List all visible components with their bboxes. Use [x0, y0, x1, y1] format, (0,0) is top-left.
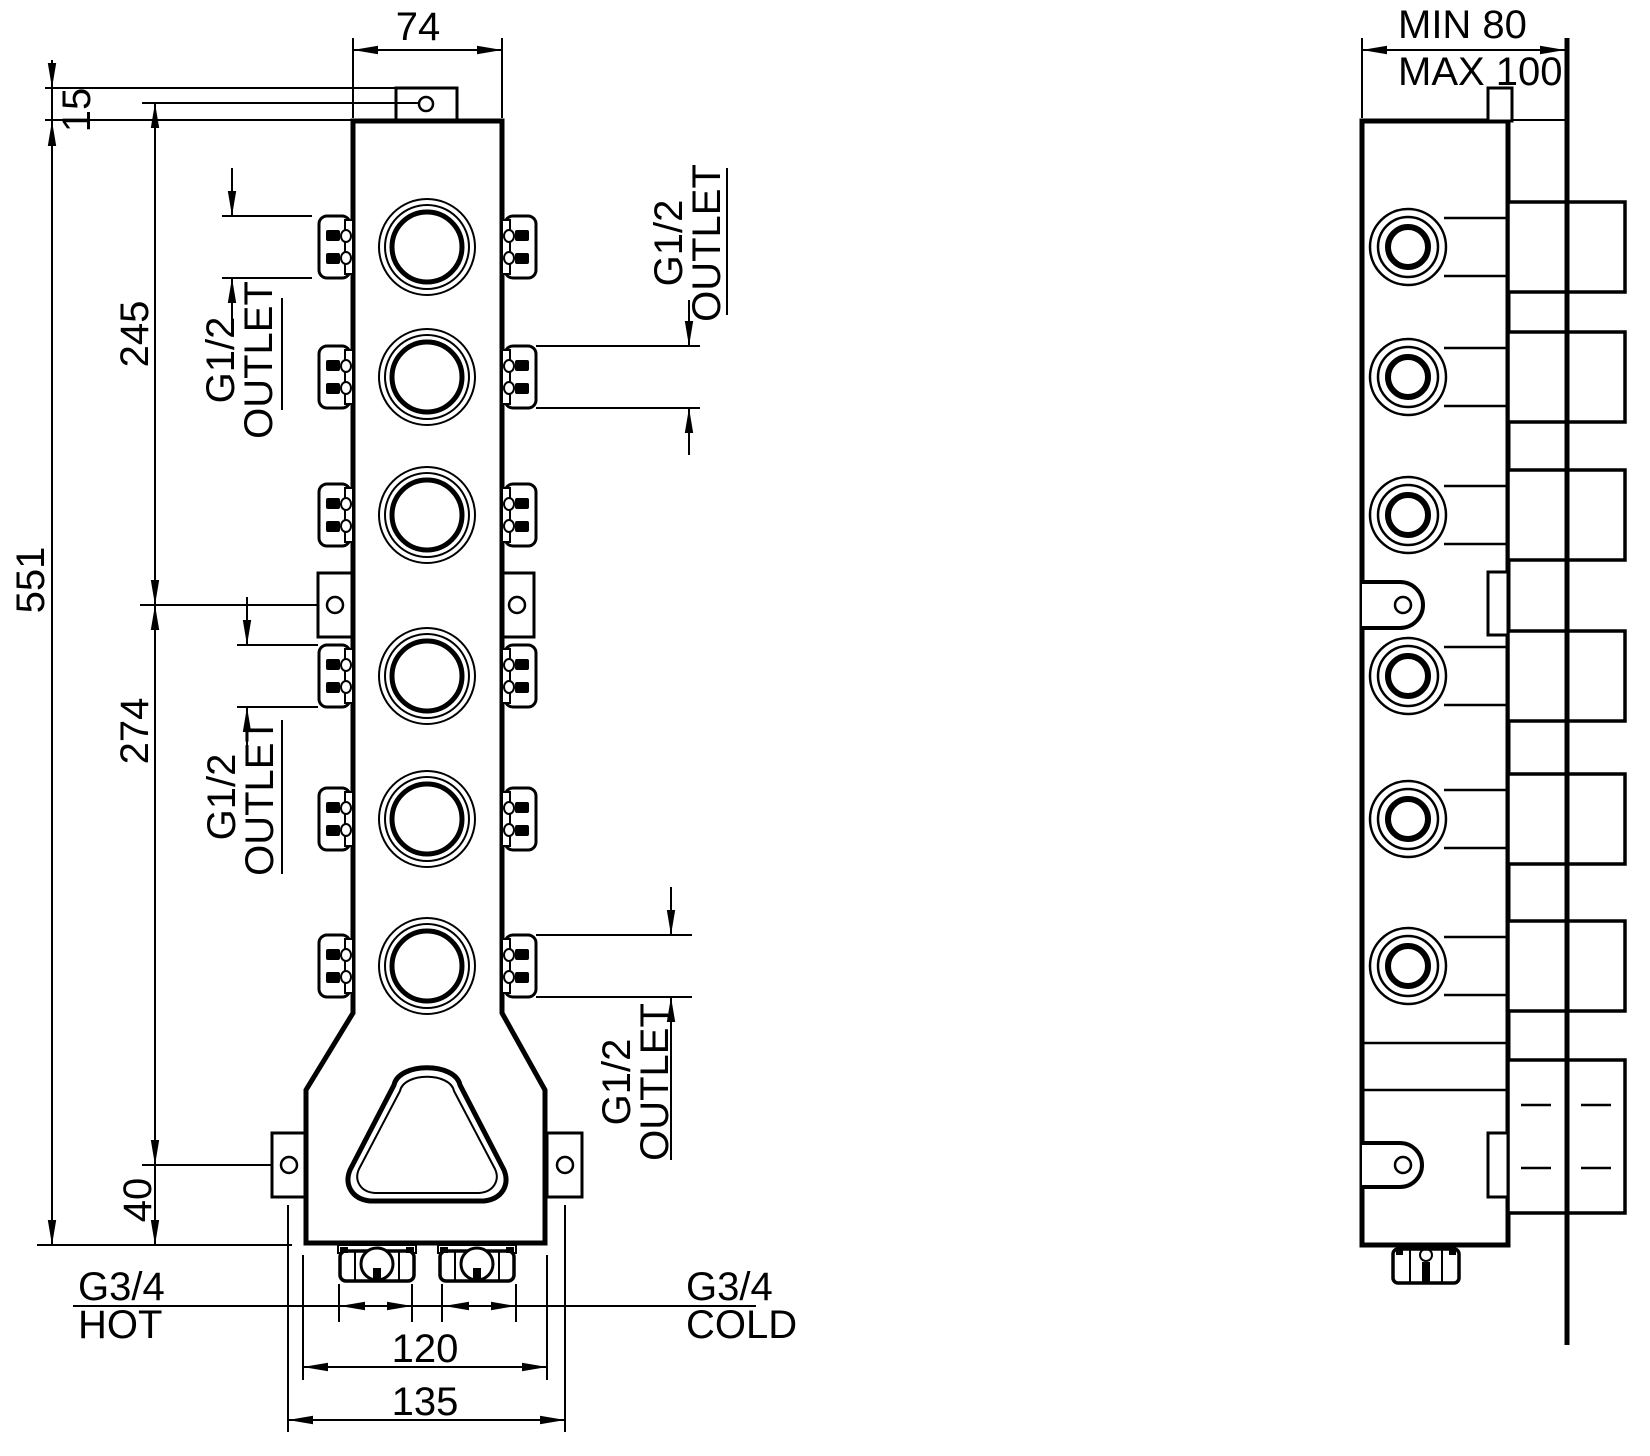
inlet-name: COLD [686, 1306, 797, 1344]
dim-span-135: 135 [392, 1383, 459, 1421]
outlet-label: OUTLET [636, 1003, 674, 1161]
dim-span-274: 274 [116, 698, 154, 765]
outlet-callout-bottom-right: G1/2 OUTLET [598, 1003, 674, 1161]
outlet-label: OUTLET [240, 281, 278, 439]
outlet-callout-top-left: G1/2 OUTLET [202, 281, 278, 439]
inlet-size: G3/4 [78, 1268, 165, 1306]
side-inlet-fitting [1393, 1249, 1459, 1283]
dim-depth-max: MAX 100 [1398, 53, 1563, 91]
side-view [1362, 38, 1625, 1345]
dim-width-74: 74 [396, 8, 441, 46]
outlet-callout-top-right: G1/2 OUTLET [650, 164, 726, 322]
bottom-fixing-tab-right [547, 1133, 582, 1197]
dim-offset-15: 15 [58, 88, 96, 133]
technical-drawing-page: 74 15 551 245 274 40 120 135 G1/2 OUTLET… [0, 0, 1650, 1456]
dim-span-120: 120 [392, 1330, 459, 1368]
outlet-label: OUTLET [688, 164, 726, 322]
inlet-cold-label: G3/4 COLD [686, 1268, 797, 1344]
outlet-size: G1/2 [598, 1003, 636, 1161]
outlet-size: G1/2 [202, 281, 240, 439]
dim-span-245: 245 [116, 301, 154, 368]
outlet-size: G1/2 [650, 164, 688, 322]
dim-depth-min: MIN 80 [1398, 6, 1527, 44]
outlet-label: OUTLET [241, 718, 279, 876]
outlet-size: G1/2 [203, 718, 241, 876]
side-mid-tab-section [1488, 572, 1508, 635]
bottom-fixing-tab-left [272, 1133, 306, 1197]
inlet-name: HOT [78, 1306, 165, 1344]
dim-offset-40: 40 [119, 1178, 157, 1223]
mid-fixing-tab-left [318, 573, 352, 637]
inlet-hot-label: G3/4 HOT [78, 1268, 165, 1344]
outlet-callout-mid-left: G1/2 OUTLET [203, 718, 279, 876]
top-fixing-tab [396, 88, 457, 121]
side-mid-fixing-tab [1362, 582, 1423, 628]
dim-height-551: 551 [12, 547, 50, 614]
side-bottom-tab-section [1488, 1133, 1508, 1197]
inlet-size: G3/4 [686, 1268, 797, 1306]
mid-fixing-tab-right [501, 573, 534, 637]
side-bottom-fixing-tab [1362, 1143, 1422, 1187]
